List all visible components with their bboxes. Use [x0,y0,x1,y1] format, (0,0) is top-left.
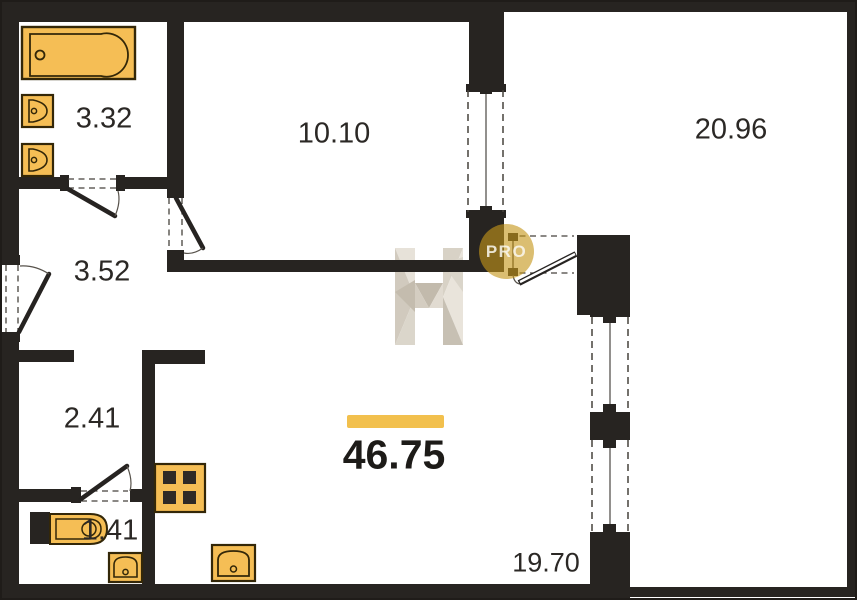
bathtub-icon [22,27,135,79]
window-between-living-terrace-lower [592,440,628,532]
total-area-accent-bar [347,415,444,428]
room-area-bathroom: 3.32 [76,105,132,134]
stove-icon [155,464,205,512]
room-area-corridor: 2.41 [64,405,120,434]
door-bathroom [68,179,119,216]
floor-plan: 3.32 10.10 20.96 3.52 2.41 1.41 19.70 46… [0,0,857,600]
door-entrance [6,265,49,332]
window-between-bedroom-terrace [468,86,503,214]
sink-icon [212,545,255,581]
door-wc [81,466,131,501]
room-area-hallway: 3.52 [74,258,130,287]
window-between-living-terrace-upper [592,315,628,412]
sink-icon [22,144,53,176]
sink-icon [22,95,53,127]
floor-plan-drawing [2,2,855,598]
room-area-terrace: 20.96 [695,116,768,145]
pro-badge-label: PRO [486,242,527,262]
room-area-wc: 1.41 [82,517,138,546]
room-area-living-kitchen: 19.70 [512,550,580,577]
sink-icon [109,553,142,582]
door-bedroom [169,198,203,253]
pro-badge: PRO [479,224,534,279]
total-area-label: 46.75 [343,435,446,476]
room-area-bedroom: 10.10 [298,120,371,149]
